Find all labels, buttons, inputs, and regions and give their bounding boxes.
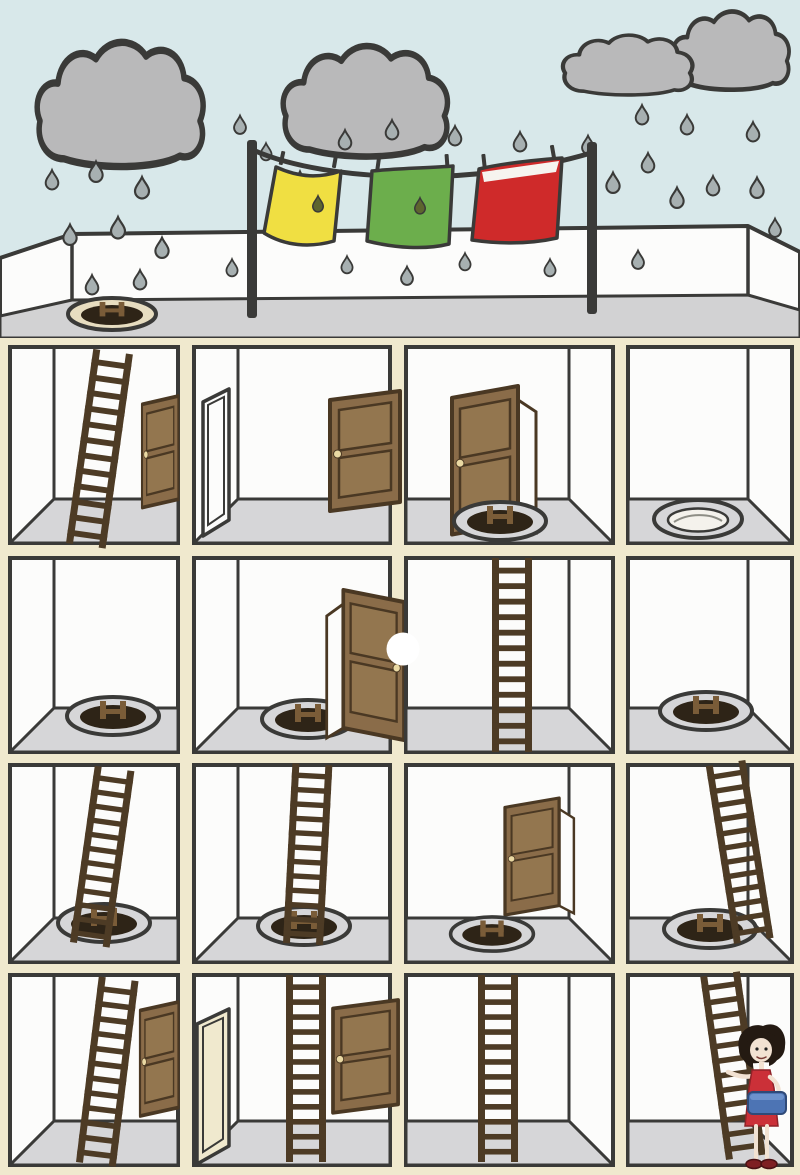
towel-yellow — [264, 167, 341, 245]
room-4-2 — [194, 975, 398, 1165]
woman-shoe — [746, 1160, 762, 1169]
closed-door — [140, 1002, 179, 1116]
room-2-2 — [194, 558, 404, 752]
woman-neck — [759, 1062, 764, 1070]
floor-hatch-with-ladder — [660, 692, 752, 730]
room-3-4 — [628, 760, 792, 962]
room-2-1 — [10, 558, 178, 752]
woman-shoe — [761, 1160, 777, 1169]
clothesline-pole-right — [587, 142, 597, 314]
room-3-2 — [194, 763, 390, 962]
woman-eye — [755, 1047, 758, 1050]
closed-door — [330, 391, 400, 511]
room-4-4 — [628, 971, 792, 1168]
room-4-1 — [10, 975, 179, 1167]
open-door — [505, 798, 574, 915]
room-1-4 — [628, 347, 792, 543]
open-door-frame — [203, 389, 229, 536]
illustration-canvas — [0, 0, 800, 1175]
open-door — [197, 1009, 229, 1164]
white-dot — [387, 633, 420, 666]
room-4-3 — [406, 975, 613, 1165]
open-floor-hatch — [654, 500, 742, 538]
room-3-1 — [10, 765, 178, 962]
room-2-4 — [628, 558, 792, 752]
room-1-1 — [10, 347, 178, 549]
open-door — [327, 590, 404, 740]
room-2-3 — [406, 558, 613, 752]
roof-hatch — [68, 298, 156, 330]
laundry-basket-rim — [750, 1094, 784, 1100]
floor-hatch-with-ladder — [454, 502, 546, 540]
floor-hatch-with-ladder — [67, 697, 159, 735]
room-3-3 — [406, 765, 613, 962]
closed-door — [142, 396, 178, 508]
floor-hatch-with-ladder — [451, 917, 534, 951]
woman-eye — [764, 1047, 767, 1050]
room-1-3 — [406, 347, 613, 543]
building-rain-cartoon — [0, 0, 800, 1175]
closed-door — [333, 1000, 398, 1113]
towel-green — [367, 166, 453, 248]
room-1-2 — [194, 347, 400, 543]
floor-hatch — [258, 907, 350, 945]
clothesline-pole-left — [247, 140, 257, 318]
